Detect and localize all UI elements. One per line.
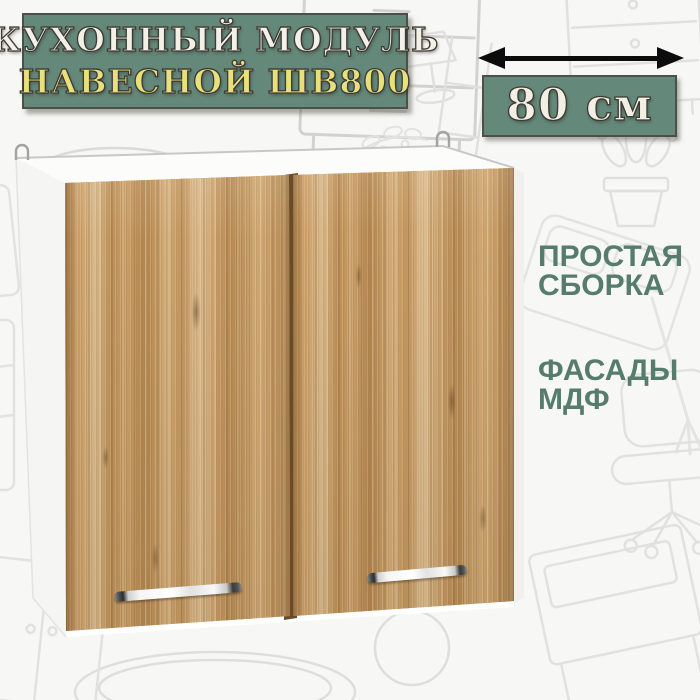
product-card: КУХОННЫЙ МОДУЛЬ НАВЕСНОЙ ШВ800 80 см ПРО…: [0, 0, 700, 700]
cabinet-door-left: [65, 175, 291, 631]
mounting-hook-right-icon: [437, 132, 449, 147]
arrow-shaft: [490, 56, 672, 61]
product-model: НАВЕСНОЙ ШВ800: [19, 61, 412, 103]
product-photo-cabinet: [0, 130, 540, 670]
width-dimension-plate: 80 см: [482, 75, 677, 137]
product-title: КУХОННЫЙ МОДУЛЬ: [0, 19, 439, 61]
feature-line: ФАСАДЫ: [538, 356, 678, 385]
width-arrow-icon: [478, 47, 684, 69]
feature-easy-assembly: ПРОСТАЯ СБОРКА: [538, 242, 683, 300]
cabinet-side-panel-left: [16, 158, 66, 637]
feature-mdf-facades: ФАСАДЫ МДФ: [538, 356, 678, 414]
doodle-side-table-icon: [528, 524, 700, 700]
cabinet-door-right: [292, 168, 514, 617]
width-dimension-label: 80 см: [506, 84, 653, 128]
feature-line: СБОРКА: [538, 271, 683, 300]
arrow-head-right: [657, 47, 684, 69]
title-plate: КУХОННЫЙ МОДУЛЬ НАВЕСНОЙ ШВ800: [22, 13, 408, 109]
feature-line: МДФ: [538, 385, 678, 414]
cabinet-side-panel-right: [514, 168, 524, 603]
feature-line: ПРОСТАЯ: [538, 242, 683, 271]
